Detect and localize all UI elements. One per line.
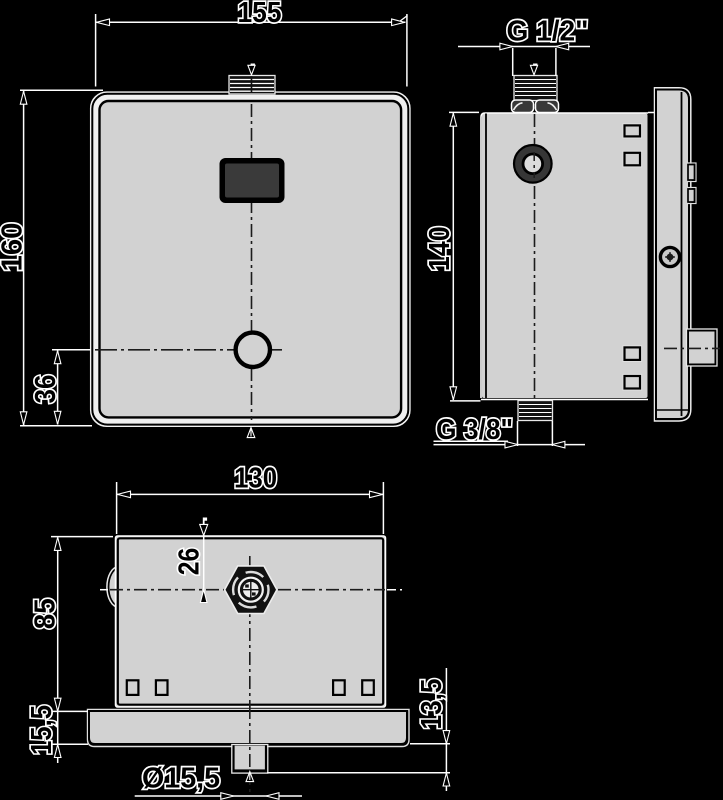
- svg-text:G 3/8": G 3/8": [436, 414, 513, 446]
- svg-text:13,5: 13,5: [416, 679, 448, 730]
- svg-text:36: 36: [30, 375, 62, 404]
- svg-text:155: 155: [238, 0, 282, 29]
- svg-text:26: 26: [174, 548, 206, 576]
- svg-text:Ø15,5: Ø15,5: [142, 763, 220, 795]
- svg-text:160: 160: [0, 223, 29, 272]
- svg-text:15,5: 15,5: [26, 705, 58, 755]
- svg-text:130: 130: [234, 463, 277, 495]
- svg-text:140: 140: [424, 226, 456, 271]
- svg-text:G 1/2": G 1/2": [507, 16, 589, 48]
- svg-text:85: 85: [30, 598, 62, 629]
